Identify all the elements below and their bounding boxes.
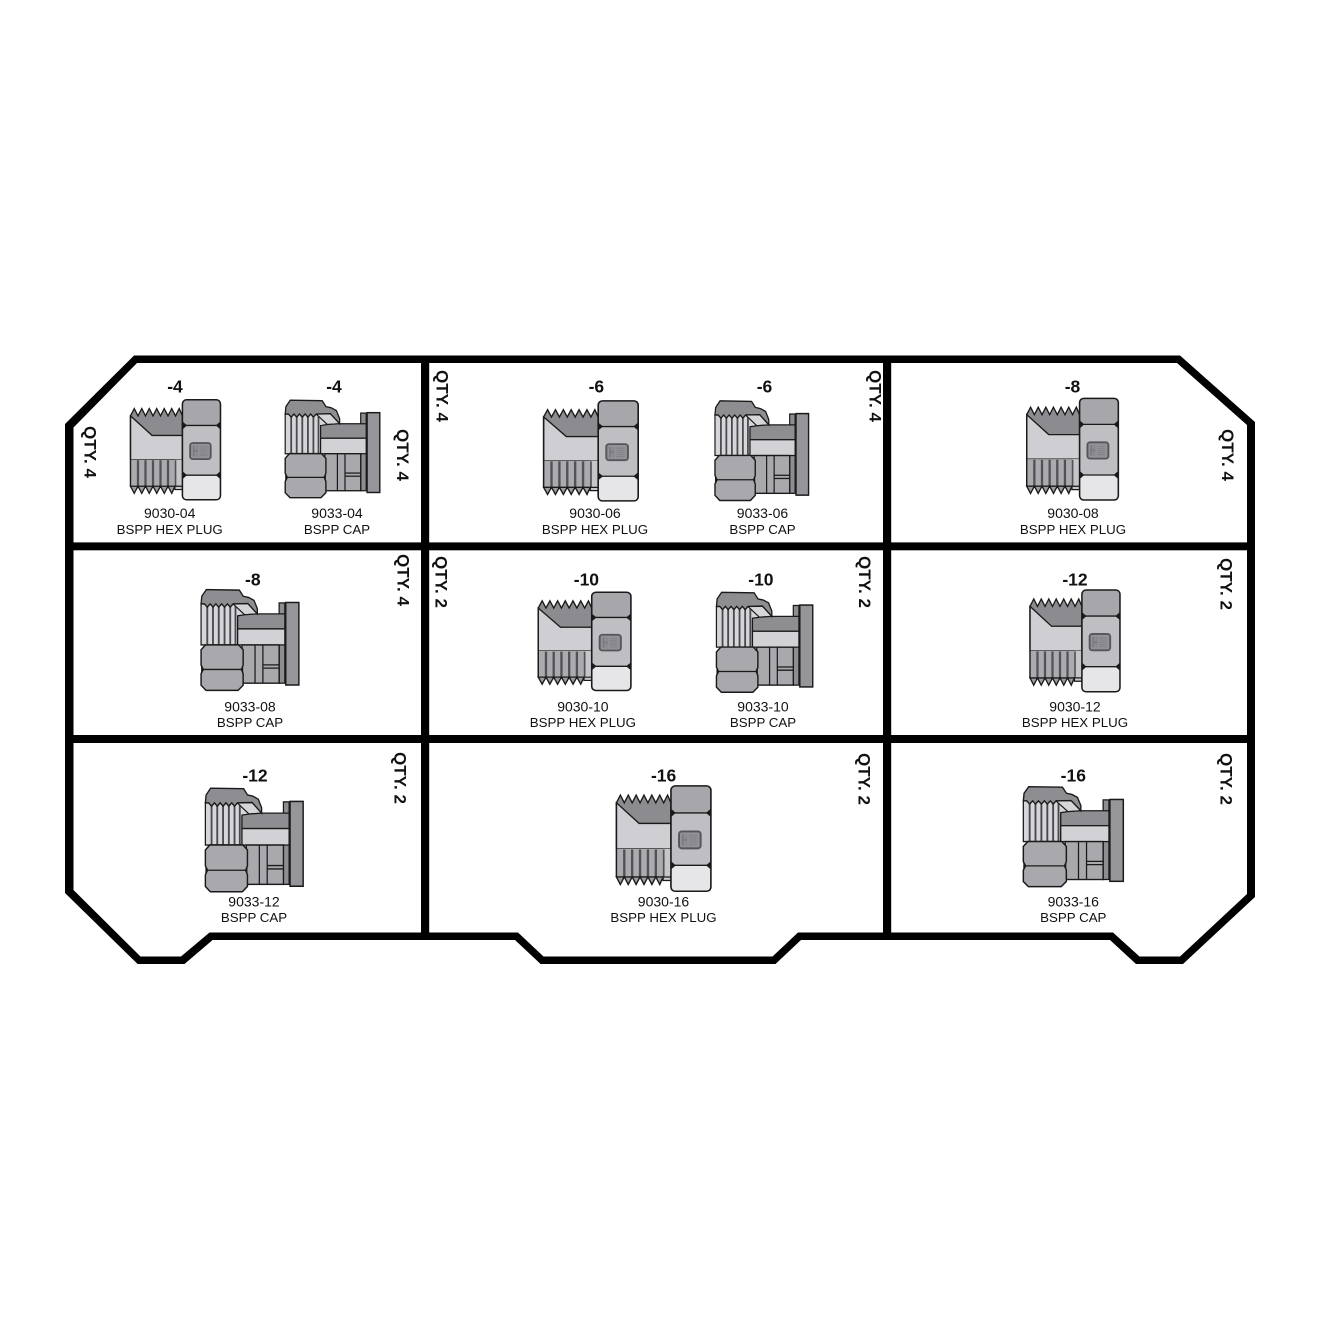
svg-text:9030-10: 9030-10 <box>557 698 609 714</box>
svg-text:9030-08: 9030-08 <box>1047 505 1099 521</box>
svg-text:9030-12: 9030-12 <box>1049 698 1101 714</box>
svg-text:-10: -10 <box>748 570 774 590</box>
svg-text:QTY. 2: QTY. 2 <box>432 556 451 608</box>
svg-text:9033-04: 9033-04 <box>311 505 363 521</box>
svg-text:9030-16: 9030-16 <box>638 893 690 909</box>
svg-text:QTY. 4: QTY. 4 <box>81 426 100 479</box>
svg-text:9033-16: 9033-16 <box>1048 893 1100 909</box>
svg-text:9033-08: 9033-08 <box>224 698 276 714</box>
svg-text:BSPP HEX PLUG: BSPP HEX PLUG <box>1022 715 1128 730</box>
svg-text:9033-10: 9033-10 <box>737 698 789 714</box>
svg-text:BSPP CAP: BSPP CAP <box>729 522 795 537</box>
svg-text:QTY. 2: QTY. 2 <box>1216 753 1235 805</box>
svg-text:-16: -16 <box>651 766 677 786</box>
svg-text:-12: -12 <box>1062 570 1088 590</box>
svg-text:9030-06: 9030-06 <box>569 505 621 521</box>
svg-text:QTY. 4: QTY. 4 <box>865 370 884 423</box>
svg-text:QTY. 2: QTY. 2 <box>855 753 874 805</box>
svg-text:QTY. 2: QTY. 2 <box>391 752 410 804</box>
svg-text:9030-04: 9030-04 <box>144 505 196 521</box>
svg-text:QTY. 2: QTY. 2 <box>1217 558 1236 610</box>
svg-text:BSPP HEX PLUG: BSPP HEX PLUG <box>542 522 648 537</box>
svg-text:BSPP CAP: BSPP CAP <box>1040 910 1106 925</box>
svg-text:-4: -4 <box>167 376 183 396</box>
svg-text:BSPP CAP: BSPP CAP <box>304 522 370 537</box>
svg-text:-6: -6 <box>757 376 773 396</box>
svg-text:-8: -8 <box>1065 376 1081 396</box>
svg-text:BSPP CAP: BSPP CAP <box>217 715 283 730</box>
svg-text:9033-12: 9033-12 <box>228 893 280 909</box>
svg-text:BSPP HEX PLUG: BSPP HEX PLUG <box>530 715 636 730</box>
svg-text:QTY. 4: QTY. 4 <box>433 370 452 423</box>
svg-text:QTY. 2: QTY. 2 <box>855 556 874 608</box>
svg-text:BSPP CAP: BSPP CAP <box>221 910 287 925</box>
svg-text:-8: -8 <box>245 570 261 590</box>
svg-text:QTY. 4: QTY. 4 <box>393 429 412 482</box>
svg-text:-16: -16 <box>1061 766 1087 786</box>
svg-text:BSPP CAP: BSPP CAP <box>730 715 796 730</box>
svg-text:9033-06: 9033-06 <box>737 505 789 521</box>
svg-text:-12: -12 <box>242 766 268 786</box>
svg-text:-6: -6 <box>589 376 605 396</box>
svg-text:QTY. 4: QTY. 4 <box>1218 429 1237 482</box>
svg-text:-4: -4 <box>326 376 342 396</box>
svg-text:BSPP HEX PLUG: BSPP HEX PLUG <box>117 522 223 537</box>
svg-text:BSPP HEX PLUG: BSPP HEX PLUG <box>1020 522 1126 537</box>
svg-text:BSPP HEX PLUG: BSPP HEX PLUG <box>610 910 716 925</box>
svg-text:-10: -10 <box>574 570 600 590</box>
svg-text:QTY. 4: QTY. 4 <box>393 554 412 607</box>
